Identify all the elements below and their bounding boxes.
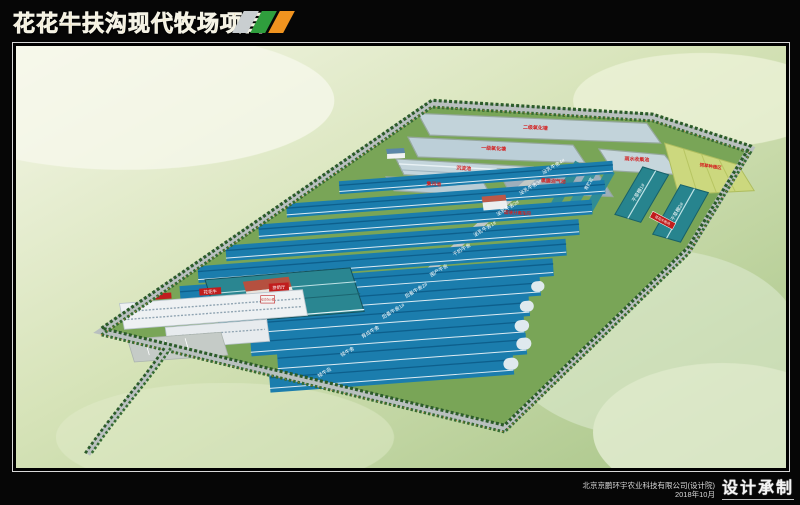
brand-logo: [238, 11, 289, 33]
title-block: 北京京鹏环宇农业科技有限公司(设计院) 2018年10月 设计承制: [582, 474, 794, 500]
office-sign: 综合办公楼: [261, 296, 275, 303]
pump-house: [386, 148, 405, 159]
design-credit: 设计承制: [722, 474, 794, 500]
design-date: 2018年10月: [582, 490, 715, 500]
page-title: 花花牛扶沟现代牧场项目: [13, 6, 266, 38]
office-sign-label: 综合办公楼: [261, 298, 274, 302]
design-company: 北京京鹏环宇农业科技有限公司(设计院): [582, 481, 715, 491]
poster-canvas: { "header": { "title": "花花牛扶沟现代牧场项目" }, …: [0, 0, 800, 505]
parlor-sign: 挤奶厅: [269, 282, 289, 291]
site-render: 花花牛 综合办公楼 挤奶厅 花花牛牧场: [16, 46, 786, 468]
render-frame: 花花牛 综合办公楼 挤奶厅 花花牛牧场: [12, 42, 790, 472]
